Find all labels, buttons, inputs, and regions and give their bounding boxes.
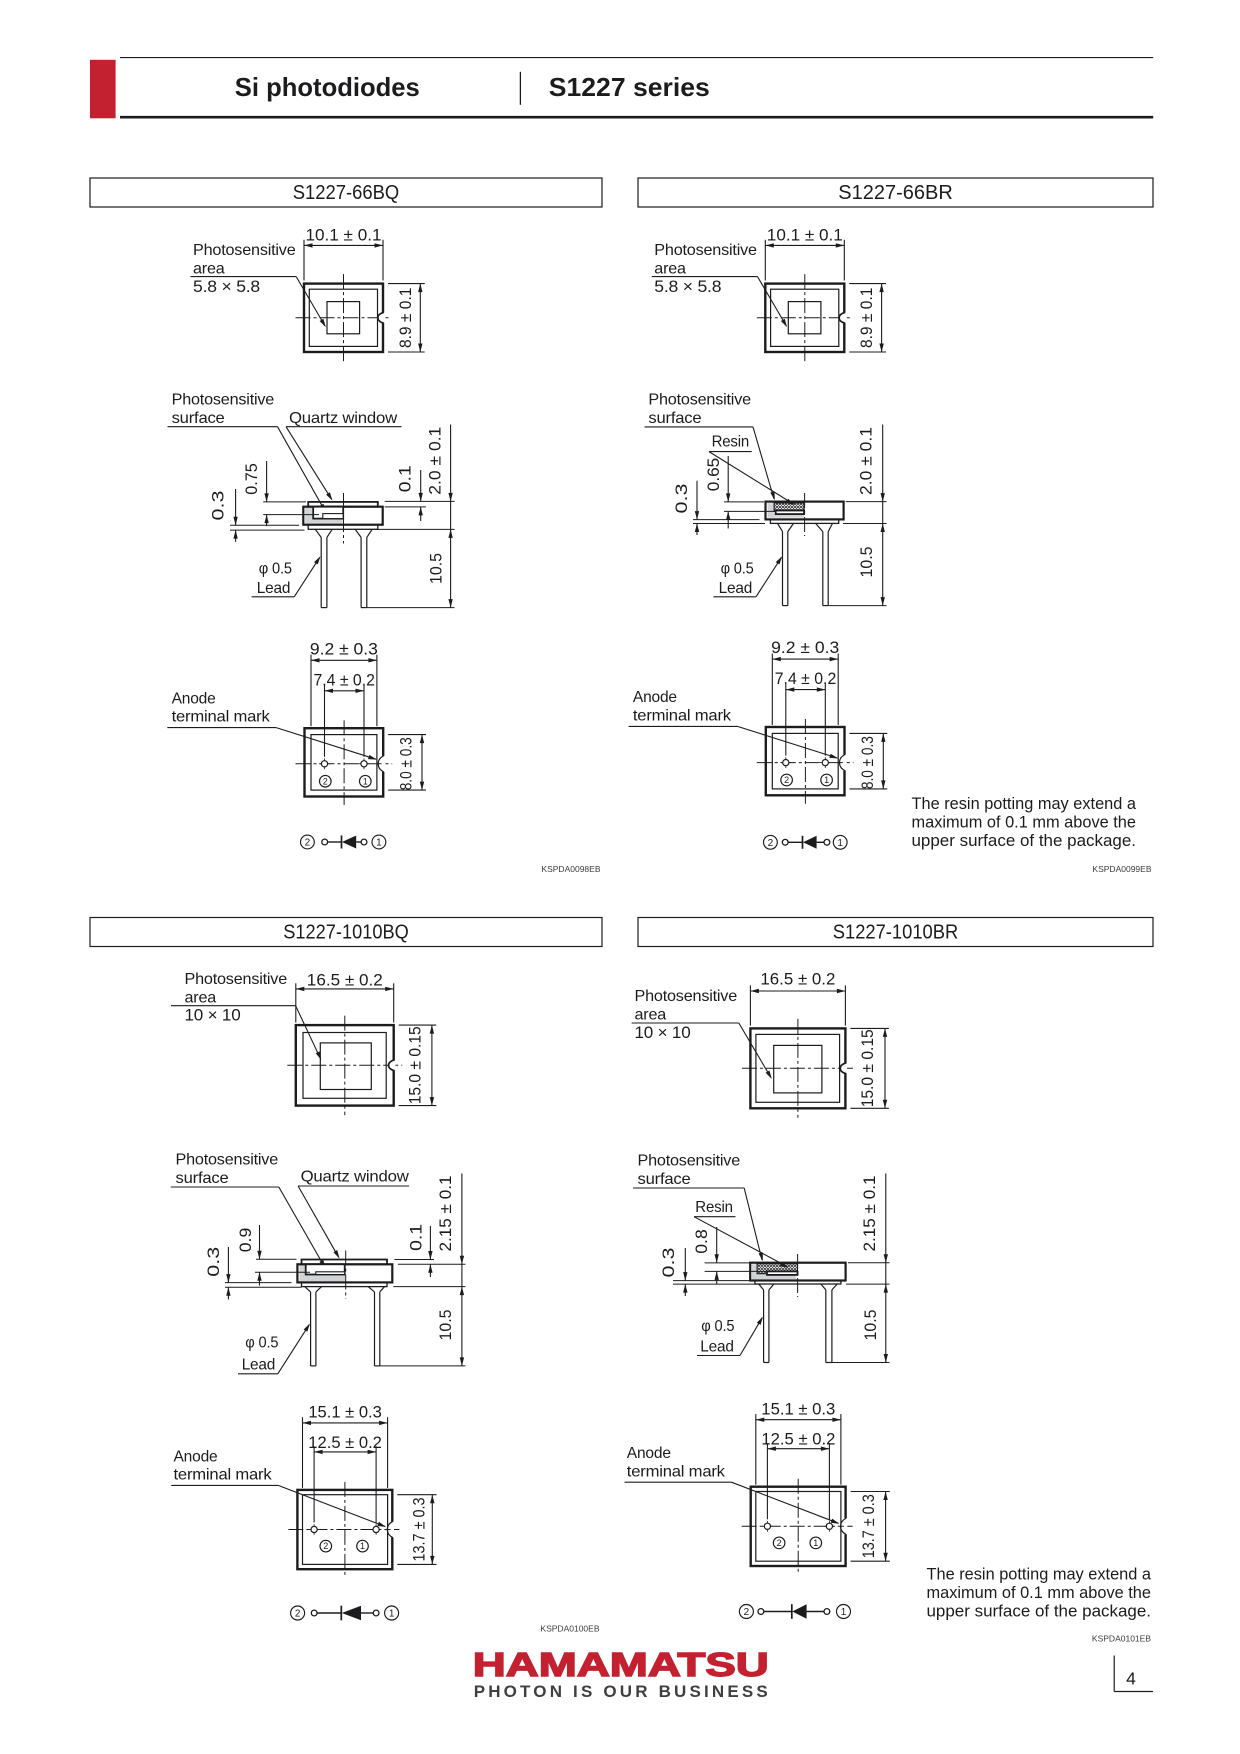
svg-text:10.5: 10.5 <box>437 1310 455 1341</box>
svg-text:15.1 ± 0.3: 15.1 ± 0.3 <box>761 1399 835 1418</box>
svg-text:8.0 ± 0.3: 8.0 ± 0.3 <box>398 737 416 790</box>
svg-text:area: area <box>654 260 686 277</box>
svg-text:0.65: 0.65 <box>705 458 723 492</box>
svg-text:1: 1 <box>360 1541 365 1551</box>
svg-text:2.15 ± 0.1: 2.15 ± 0.1 <box>861 1176 879 1252</box>
svg-text:Photosensitive: Photosensitive <box>648 392 751 409</box>
svg-text:10.5: 10.5 <box>858 547 876 578</box>
svg-text:10.1 ± 0.1: 10.1 ± 0.1 <box>306 226 382 245</box>
svg-text:2: 2 <box>323 1541 328 1551</box>
svg-text:0.1: 0.1 <box>407 1224 425 1251</box>
svg-text:KSPDA0099EB: KSPDA0099EB <box>1092 864 1151 874</box>
svg-text:Photosensitive: Photosensitive <box>193 242 296 259</box>
svg-text:2.0 ± 0.1: 2.0 ± 0.1 <box>858 427 876 495</box>
svg-text:S1227-66BQ: S1227-66BQ <box>293 182 400 204</box>
svg-text:1: 1 <box>837 838 843 849</box>
svg-text:15.0 ± 0.15: 15.0 ± 0.15 <box>407 1026 425 1104</box>
svg-text:area: area <box>193 260 225 277</box>
svg-text:Lead: Lead <box>719 580 753 597</box>
svg-text:Photosensitive: Photosensitive <box>654 242 757 259</box>
svg-text:φ 0.5: φ 0.5 <box>259 561 292 578</box>
svg-text:2: 2 <box>295 1609 301 1620</box>
svg-text:terminal mark: terminal mark <box>627 1464 726 1481</box>
svg-text:maximum of 0.1 mm above the: maximum of 0.1 mm above the <box>912 814 1137 832</box>
svg-text:16.5 ± 0.2: 16.5 ± 0.2 <box>760 969 835 988</box>
svg-text:Photosensitive: Photosensitive <box>638 1153 741 1170</box>
svg-text:15.1 ± 0.3: 15.1 ± 0.3 <box>308 1403 382 1422</box>
svg-text:2: 2 <box>744 1607 750 1618</box>
svg-text:surface: surface <box>176 1170 229 1187</box>
svg-text:1: 1 <box>813 1538 818 1548</box>
svg-text:upper surface of the package.: upper surface of the package. <box>912 832 1137 850</box>
svg-text:terminal mark: terminal mark <box>174 1467 273 1484</box>
svg-text:0.9: 0.9 <box>237 1228 255 1253</box>
svg-text:Quartz window: Quartz window <box>301 1168 410 1185</box>
svg-text:1: 1 <box>376 838 382 849</box>
svg-text:Resin: Resin <box>695 1199 733 1216</box>
svg-text:1: 1 <box>824 775 829 785</box>
svg-text:Photosensitive: Photosensitive <box>176 1152 279 1169</box>
svg-text:10 × 10: 10 × 10 <box>635 1024 691 1042</box>
svg-text:2: 2 <box>784 775 789 785</box>
svg-text:Anode: Anode <box>174 1448 218 1465</box>
svg-text:S1227-1010BR: S1227-1010BR <box>833 922 959 944</box>
svg-text:9.2 ± 0.3: 9.2 ± 0.3 <box>771 638 839 657</box>
svg-text:Si photodiodes: Si photodiodes <box>235 72 420 102</box>
svg-text:Anode: Anode <box>627 1445 671 1462</box>
svg-text:KSPDA0100EB: KSPDA0100EB <box>540 1624 599 1634</box>
svg-text:8.9 ± 0.1: 8.9 ± 0.1 <box>397 288 415 349</box>
svg-text:10 × 10: 10 × 10 <box>185 1007 241 1025</box>
svg-text:area: area <box>635 1007 667 1024</box>
svg-text:12.5 ± 0.2: 12.5 ± 0.2 <box>308 1433 382 1452</box>
svg-text:10.5: 10.5 <box>862 1310 880 1341</box>
svg-text:upper surface of the package.: upper surface of the package. <box>927 1602 1152 1620</box>
svg-text:0.1: 0.1 <box>396 465 414 492</box>
svg-text:2: 2 <box>768 838 774 849</box>
svg-text:0.3: 0.3 <box>210 491 228 521</box>
svg-text:0.3: 0.3 <box>660 1248 678 1278</box>
svg-text:0.3: 0.3 <box>673 484 691 514</box>
svg-text:surface: surface <box>648 410 701 427</box>
svg-text:1: 1 <box>841 1607 847 1618</box>
svg-text:12.5 ± 0.2: 12.5 ± 0.2 <box>761 1430 835 1449</box>
svg-text:Lead: Lead <box>242 1357 276 1374</box>
svg-text:S1227-66BR: S1227-66BR <box>838 182 953 204</box>
svg-text:surface: surface <box>172 410 225 427</box>
svg-text:KSPDA0098EB: KSPDA0098EB <box>541 864 600 874</box>
svg-text:KSPDA0101EB: KSPDA0101EB <box>1092 1633 1151 1643</box>
svg-text:Resin: Resin <box>712 434 750 451</box>
svg-text:Quartz window: Quartz window <box>289 410 398 427</box>
svg-text:0.75: 0.75 <box>243 463 261 495</box>
svg-text:2.15 ± 0.1: 2.15 ± 0.1 <box>437 1176 455 1252</box>
svg-text:15.0 ± 0.15: 15.0 ± 0.15 <box>859 1029 877 1107</box>
svg-text:Lead: Lead <box>700 1338 734 1355</box>
svg-text:2: 2 <box>323 776 328 786</box>
svg-text:2.0 ± 0.1: 2.0 ± 0.1 <box>426 427 444 495</box>
svg-text:The resin potting may extend a: The resin potting may extend a <box>927 1565 1152 1583</box>
svg-text:13.7 ± 0.3: 13.7 ± 0.3 <box>860 1494 878 1558</box>
svg-text:1: 1 <box>363 776 368 786</box>
svg-text:area: area <box>185 989 217 1006</box>
svg-text:8.0 ± 0.3: 8.0 ± 0.3 <box>859 736 877 789</box>
svg-text:2: 2 <box>305 838 311 849</box>
svg-text:φ 0.5: φ 0.5 <box>721 561 754 578</box>
svg-text:1: 1 <box>389 1609 395 1620</box>
svg-text:9.2 ± 0.3: 9.2 ± 0.3 <box>310 639 378 658</box>
svg-text:HAMAMATSU: HAMAMATSU <box>473 1646 769 1683</box>
svg-text:terminal mark: terminal mark <box>172 709 271 726</box>
svg-text:2: 2 <box>777 1538 782 1548</box>
svg-text:5.8 × 5.8: 5.8 × 5.8 <box>654 278 721 296</box>
svg-text:4: 4 <box>1126 1669 1136 1689</box>
svg-text:Lead: Lead <box>257 580 291 597</box>
svg-text:φ 0.5: φ 0.5 <box>701 1318 734 1335</box>
svg-text:Photosensitive: Photosensitive <box>635 988 738 1005</box>
svg-text:Anode: Anode <box>633 689 677 706</box>
svg-text:φ 0.5: φ 0.5 <box>245 1334 278 1351</box>
svg-text:maximum of 0.1 mm above the: maximum of 0.1 mm above the <box>927 1584 1152 1602</box>
svg-text:The resin potting may extend a: The resin potting may extend a <box>912 795 1137 813</box>
svg-text:0.8: 0.8 <box>693 1229 711 1254</box>
svg-text:13.7 ± 0.3: 13.7 ± 0.3 <box>410 1498 428 1562</box>
svg-text:10.1 ± 0.1: 10.1 ± 0.1 <box>767 226 843 245</box>
svg-text:7.4 ± 0.2: 7.4 ± 0.2 <box>775 669 837 688</box>
svg-text:S1227-1010BQ: S1227-1010BQ <box>283 922 409 944</box>
svg-text:surface: surface <box>638 1171 691 1188</box>
svg-text:Anode: Anode <box>172 690 216 707</box>
svg-text:S1227 series: S1227 series <box>549 72 710 102</box>
svg-text:terminal mark: terminal mark <box>633 708 732 725</box>
svg-text:8.9 ± 0.1: 8.9 ± 0.1 <box>858 288 876 349</box>
svg-text:16.5 ± 0.2: 16.5 ± 0.2 <box>307 971 383 990</box>
svg-text:Photosensitive: Photosensitive <box>172 392 275 409</box>
svg-text:Photosensitive: Photosensitive <box>185 971 288 988</box>
svg-text:10.5: 10.5 <box>427 553 445 584</box>
svg-text:5.8 × 5.8: 5.8 × 5.8 <box>193 278 260 296</box>
svg-text:0.3: 0.3 <box>205 1247 223 1277</box>
svg-text:7.4 ± 0.2: 7.4 ± 0.2 <box>313 670 375 689</box>
